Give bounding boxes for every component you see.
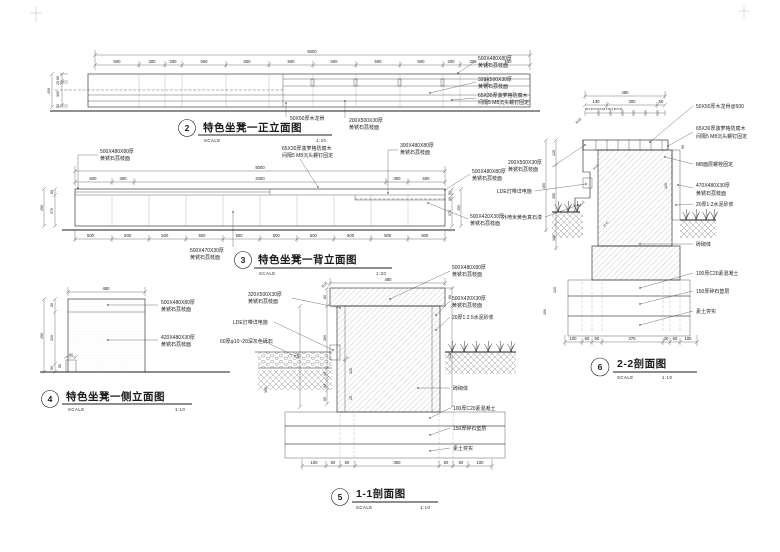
dim-label: 20 [56,81,60,85]
material-label: 砖砌体 [453,385,468,392]
dim-label: 5000 [307,49,317,54]
scale-value: 1:10 [175,407,185,412]
material-label: 65X30厚菠萝格防腐木 [478,92,527,99]
dim-label: 50 [50,366,54,370]
dim-label: 80 [50,303,54,307]
dim-label: 420 [296,353,300,359]
view-title: 1-1剖面图 [356,487,406,500]
dim-label: 355 [552,193,556,199]
material-label: 黄锈石荔枝面 [452,302,482,309]
material-label: 黄锈石荔枝面 [472,175,502,182]
material-label: 500X480X80厚 [100,149,134,155]
material-label: 砖砌体 [696,241,711,248]
material-label: 50X50厚木龙骨@500 [696,103,744,110]
material-label: 470X480X30厚 [696,183,730,189]
material-label: 黄锈石荔枝面 [161,306,191,313]
leader-line [78,155,98,188]
dim-label: 50 [58,364,62,368]
dim-label: 450 [457,205,461,211]
view-title: 特色坐凳一背立面图 [258,253,357,266]
material-label: 100厚C20素混凝土 [453,405,496,412]
dim-label: 50 [69,353,73,357]
dim-label: 60 [323,397,327,401]
leader-line [650,106,693,142]
dim-label: 300 [56,91,60,97]
dim-label: 500 [90,176,98,181]
wood-slat-fill [583,140,668,150]
dim-label: 5000 [255,165,265,170]
material-label: 200X500X30厚 [508,160,542,166]
scale-label: SCALE [68,407,85,412]
material-label: 500X470X30厚 [190,248,224,254]
dim-label: 50 40 [578,200,586,208]
material-label: 65X30厚菠萝格防腐木 [282,145,331,152]
view-number: 6 [598,362,603,372]
dim-label: 450 [40,333,44,339]
material-label: 间隔5 M8沉头螺钉固定 [696,133,747,140]
scale-value: 1:20 [376,271,386,276]
material-label: LDE灯带详电施 [497,188,532,195]
material-label: 500X480X80厚 [478,56,512,62]
material-label: 外喷米黄色真石漆 [502,214,542,221]
material-label: 200X500X30厚 [349,118,383,124]
brick-footing-fill [592,246,680,280]
dim-label: 500 [201,59,209,64]
front-elevation-view: 5000 500 300 200 500 500 500 500 500 500… [47,49,540,143]
dim-label: 370 [629,336,637,341]
concrete-layer [568,280,690,296]
dim-label: 450 [40,205,44,211]
scale-label: SCALE [259,271,276,276]
corner-mark [30,6,42,22]
cad-drawing-canvas: 5000 500 300 200 500 500 500 500 500 500… [0,0,780,552]
material-label: LDE灯带详电施 [233,319,268,326]
dim-label: 300 [629,99,637,104]
dim-label: 500 [423,176,431,181]
view-number: 3 [241,255,246,265]
material-label: 黄锈石荔枝面 [478,62,508,69]
dim-label: 500 [375,59,383,64]
dim-label: 160 [552,235,556,241]
dim-label: 100 [311,460,319,465]
wood-batten [311,79,488,86]
material-label: 黄锈石荔枝面 [349,124,379,131]
dim-label: 300 [264,387,268,393]
stone-slab-fill [330,288,445,306]
dim-label: 350 [394,460,402,465]
bench-grid [112,195,408,226]
dim-label: 500 [114,59,122,64]
leader-line [430,82,476,93]
leader-line [430,448,450,451]
dim-line [52,74,68,107]
material-label: 50X50厚木龙骨 [290,115,324,122]
section-1-1-view: 480 R15 80 420 420 80 260 40 50 60 120 2… [220,265,516,510]
scale-label: SCALE [204,138,221,143]
dim-line [298,286,329,409]
leader-line [640,311,693,325]
dim-label: 100 [570,336,578,341]
dim-label: 500 [244,59,252,64]
material-label: 150厚碎石垫层 [453,425,486,432]
dim-label: 370 [448,210,452,216]
material-label: 黄锈石荔枝面 [470,220,500,227]
dim-label: 500 [331,59,339,64]
leader-line [300,159,318,187]
brick-body-fill [598,150,672,246]
material-label: 黄锈石荔枝面 [190,254,220,261]
material-label: M8面层螺栓固定 [696,161,733,168]
dim-label: 420 [664,183,668,189]
material-label: 320X500X30厚 [478,77,512,83]
soil-layer [568,316,690,336]
drawing-sheet: 5000 500 300 200 500 500 500 500 500 500… [0,0,780,552]
dim-label: 480 [103,286,111,291]
dim-label: 420 [448,353,452,359]
corner-mark [738,6,750,18]
mortar-strip [432,306,440,412]
material-label: 黄锈石荔枝面 [100,155,130,162]
dim-label: 20 [349,396,353,400]
dim-label: 50 [448,191,452,195]
material-label: 黄锈石荔枝面 [452,271,482,278]
dim-label: 60 [673,336,678,341]
bench-lines [88,74,530,107]
dim-label: R15 [575,117,582,124]
leader-line [458,61,476,73]
dim-label: 50 [56,104,60,108]
dim-label: 60 [459,460,464,465]
dim-label: 60 [585,336,590,341]
dim-label: 60 [595,336,600,341]
material-label: 500X420X30厚 [470,214,504,220]
view-number: 5 [338,492,343,502]
material-label: 500X480X80厚 [452,265,486,271]
dim-label: 500 [418,59,426,64]
dim-label: 450 [542,183,546,189]
material-label: 黄锈石荔枝面 [508,166,538,173]
dim-label: 300 [543,309,547,315]
dim-label: 450 [47,88,51,94]
material-label: 间隔5 M8沉头螺钉固定 [478,99,529,106]
material-label: 素土夯实 [696,308,716,315]
dim-label: 200 [170,59,178,64]
stone-fill [68,299,145,372]
dim-label: 300 [394,176,402,181]
dim-label: 300 [120,176,128,181]
soil-band [258,370,332,390]
dim-label: 125 [552,150,556,156]
material-label: 150厚碎石垫层 [696,288,729,295]
soil-right [680,220,716,238]
material-label: 320X500X30厚 [248,292,282,298]
dim-label: 60 [331,460,336,465]
dim-label: 50 [323,384,327,388]
dim-label: 500 500 500 500 500 500 500 500 500 500 [87,233,429,238]
leader-line [552,145,585,167]
view-number: 2 [185,123,190,133]
dim-label: 80 5 65 5 65 5 65 5 65 5 65 5 45 [585,107,623,111]
dim-label: 120 [553,287,557,293]
leader-line [430,428,450,435]
side-elevation-view: 480 50 50 80 320 50 450 500X480X80厚 黄锈石荔… [40,286,230,412]
dim-label: 300 [470,59,478,64]
dim-label: 480 [622,90,630,95]
dim-label: 500 [288,59,296,64]
section-grid [582,282,680,332]
dim-label: 80 [56,76,60,80]
dim-label: 40 [323,372,327,376]
material-label: 300X480X80厚 [400,143,434,149]
view-title: 特色坐凳一正立面图 [203,121,302,134]
dim-label: 300 [149,59,157,64]
led-niche [583,178,592,188]
material-label: 65X30厚菠萝格防腐木 [696,125,745,132]
dim-label: 130 [593,99,601,104]
section-grid [340,414,453,466]
dim-label: 260 [323,335,327,341]
material-label: 500X480X80厚 [472,169,506,175]
concrete-layer [285,412,505,426]
dim-label: 3400 [255,176,265,181]
dim-label: 80 [323,295,327,299]
dim-label: 60 [345,460,350,465]
dim-label: 40 [664,336,669,341]
dim-label: 370 [50,208,54,214]
dim-label: 60 [444,460,449,465]
dim-label: 100 [477,460,485,465]
leader-line [678,185,693,188]
scale-value: 1:10 [662,375,672,380]
material-label: 素土夯实 [453,445,473,452]
scale-value: 1:20 [316,138,326,143]
leader-line [640,291,693,304]
scale-label: SCALE [617,375,634,380]
view-number: 4 [48,394,53,404]
material-label: 黄锈石荔枝面 [400,149,430,156]
material-label: 20厚1:2.5水泥砂浆 [452,314,494,321]
dim-label: 30 [448,197,452,201]
material-label: 黄锈石荔枝面 [478,83,508,90]
material-label: 60厚φ10~20深灰色砾石 [220,338,273,345]
dim-label: 320 [50,335,54,341]
material-label: 420X480X30厚 [161,335,195,341]
view-title: 2-2剖面图 [617,357,667,370]
section-2-2-view: 480 130 300 50 80 5 65 5 65 5 65 5 65 5 … [497,90,747,380]
dim-label: 100 [685,336,693,341]
back-elevation-view: 5000 500 300 3400 300 500 500 500 500 50… [40,143,506,276]
material-label: 500X480X80厚 [161,300,195,306]
material-label: 间隔5 M8沉头螺钉固定 [282,152,333,159]
leader-line [668,132,693,146]
soil-left [552,212,583,238]
view-title: 特色坐凳一侧立面图 [66,390,165,403]
material-label: 黄锈石荔枝面 [696,190,726,197]
dim-label: 50 [681,145,685,149]
dim-label: 50 [659,99,664,104]
scale-value: 1:10 [420,505,430,510]
dim-label: 120 [349,368,353,374]
leader-line [445,174,470,190]
material-label: 100厚C20素混凝土 [696,270,739,277]
leader-line [388,150,398,193]
gravel-layer [568,296,690,316]
material-label: 20厚1:2水泥砂浆 [696,201,734,208]
gravel-band [258,352,332,368]
scale-label: SCALE [356,505,373,510]
material-label: 500X420X30厚 [452,296,486,302]
dim-label: 80 [50,190,54,194]
dim-label: 200 [448,59,456,64]
planter-soil [445,352,516,374]
material-label: 黄锈石荔枝面 [161,341,191,348]
dim-label: 480 [385,277,393,282]
material-label: 黄锈石荔枝面 [248,298,278,305]
leader-line [452,98,476,100]
